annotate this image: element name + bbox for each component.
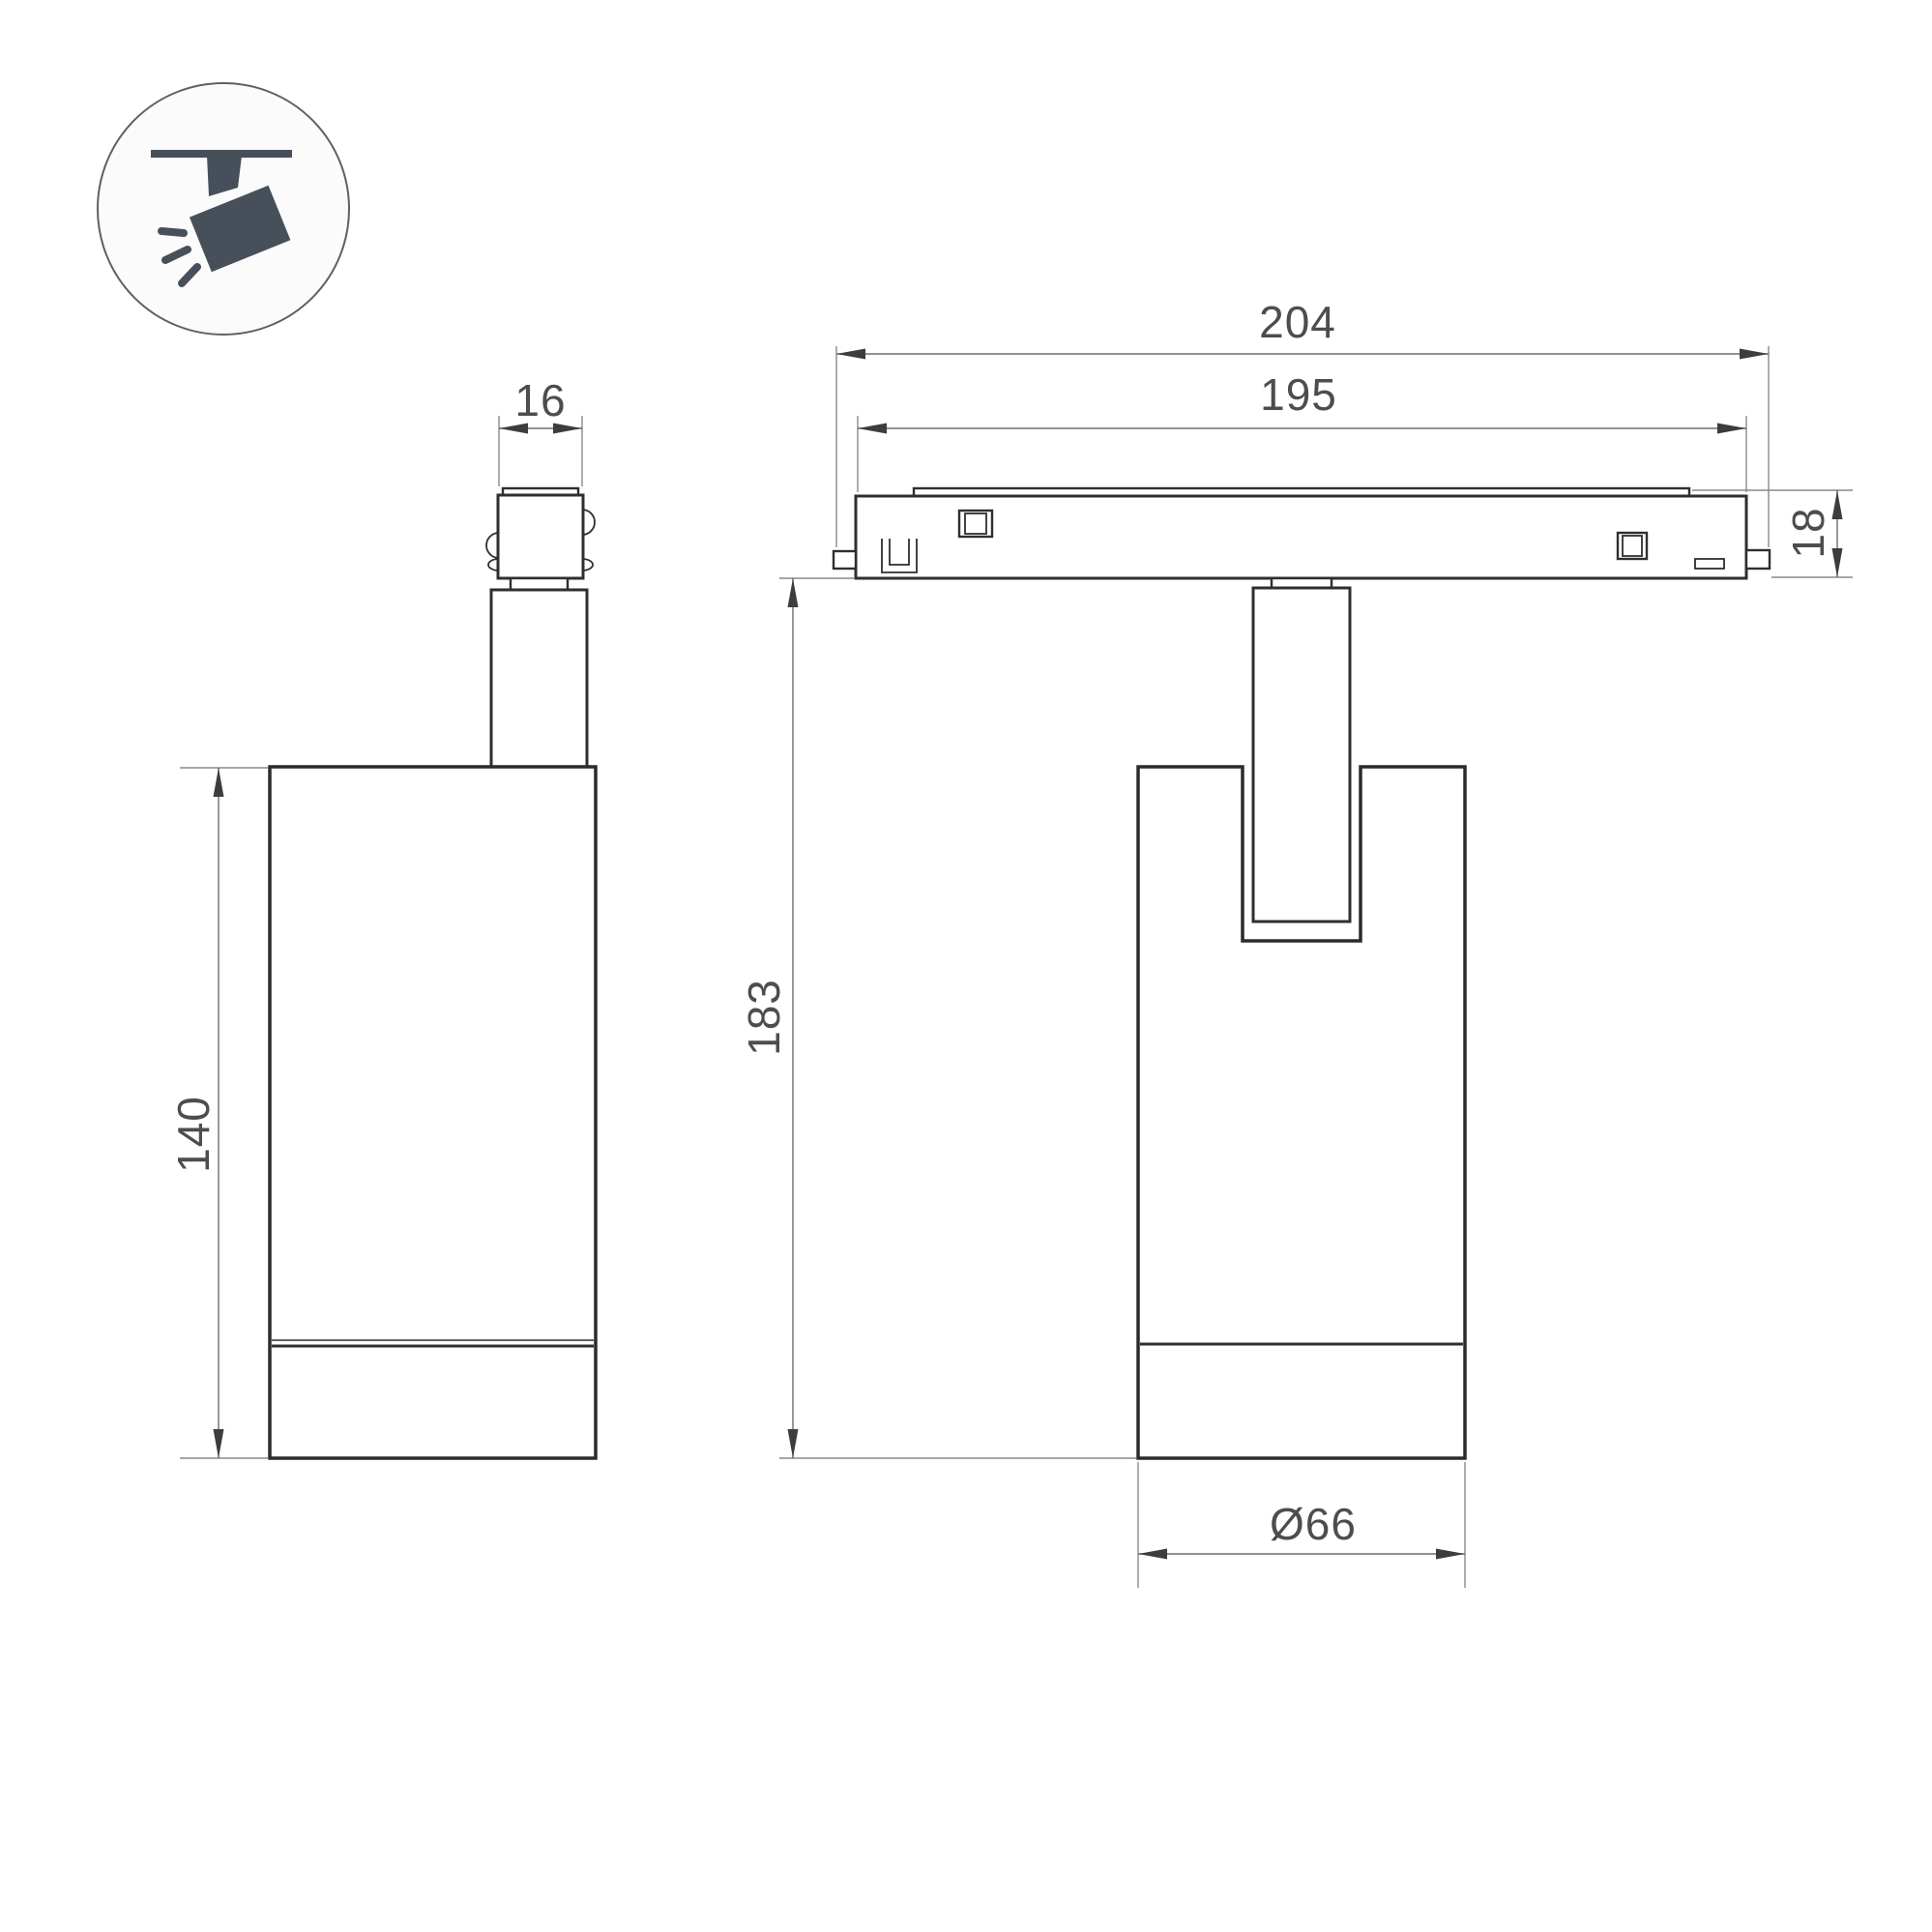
track-adapter-side <box>498 495 583 578</box>
arrowhead-left <box>858 424 887 434</box>
arrowhead-up <box>788 578 799 607</box>
arrowhead-down <box>788 1429 799 1458</box>
arrowhead-down <box>1832 548 1843 577</box>
arm-front <box>1253 588 1350 922</box>
end-tab-left <box>834 551 856 569</box>
dimension-195: 195 <box>858 369 1746 492</box>
arrowhead-up <box>1832 490 1843 519</box>
arrowhead-right <box>1436 1549 1465 1560</box>
dimension-label-204: 204 <box>1259 297 1336 347</box>
arm-side <box>491 590 587 767</box>
arrowhead-up <box>214 768 224 797</box>
dimension-label-diameter-66: Ø66 <box>1270 1499 1357 1549</box>
mount-type-icon <box>98 83 349 335</box>
dimension-label-16: 16 <box>514 375 566 425</box>
dimension-16: 16 <box>499 375 582 486</box>
arrowhead-right <box>1740 349 1769 360</box>
dimension-label-195: 195 <box>1260 369 1337 420</box>
dimension-140: 140 <box>168 768 268 1458</box>
neck-side <box>511 578 568 590</box>
lamp-body-side <box>270 767 596 1458</box>
dimension-183: 183 <box>739 578 1136 1458</box>
dimension-label-183: 183 <box>739 979 789 1056</box>
technical-drawing-page: 16 140 204 195 <box>0 0 1932 1932</box>
arrowhead-left <box>836 349 865 360</box>
contact-socket-left <box>959 511 992 537</box>
side-view <box>270 488 596 1458</box>
dimension-diameter-66: Ø66 <box>1138 1462 1465 1588</box>
arrowhead-right <box>1717 424 1746 434</box>
dimension-label-140: 140 <box>168 1096 219 1173</box>
arrowhead-down <box>214 1429 224 1458</box>
end-tab-right <box>1746 550 1770 569</box>
dimension-label-18: 18 <box>1783 507 1833 558</box>
dimension-drawing: 16 140 204 195 <box>0 0 1932 1932</box>
front-view <box>834 488 1770 1458</box>
arrowhead-left <box>1138 1549 1167 1560</box>
